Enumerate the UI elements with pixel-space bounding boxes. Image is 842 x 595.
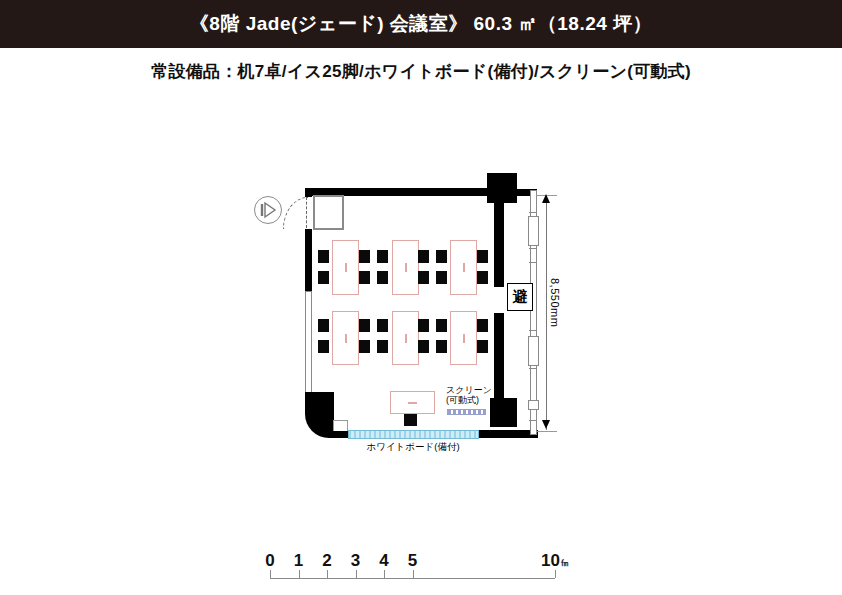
table-center-mark xyxy=(345,263,347,272)
table xyxy=(450,240,477,295)
scale-tick xyxy=(299,570,300,578)
chair xyxy=(359,250,370,263)
scale-unit: ㎙ xyxy=(560,558,569,568)
chair xyxy=(436,271,447,284)
scale-number: 2 xyxy=(322,551,331,571)
chair xyxy=(477,319,488,332)
window-frame xyxy=(528,336,539,366)
entrance-direction-icon xyxy=(254,196,282,224)
chair xyxy=(477,340,488,353)
screen-label-line2: (可動式) xyxy=(446,395,492,405)
scale-number: 1 xyxy=(294,551,303,571)
window-divider xyxy=(529,368,537,369)
scale-number: 10㎙ xyxy=(541,551,569,571)
table-center-mark xyxy=(463,263,465,272)
page-title: 《8階 Jade(ジェード) 会議室》 60.3 ㎡（18.24 坪） xyxy=(190,11,652,37)
table-center-mark xyxy=(405,263,407,272)
wall-left-mid xyxy=(305,229,312,291)
window-divider xyxy=(529,330,537,331)
table-center-mark xyxy=(408,402,417,404)
wall-bottom-right xyxy=(477,430,538,438)
dimension-arrow-down-icon xyxy=(542,420,550,429)
chair xyxy=(318,340,329,353)
window-divider xyxy=(529,262,537,263)
wall-corner-rounded xyxy=(305,392,334,438)
scale-number: 4 xyxy=(379,551,388,571)
table xyxy=(392,311,419,365)
header-bar: 《8階 Jade(ジェード) 会議室》 60.3 ㎡（18.24 坪） xyxy=(0,0,842,48)
chair xyxy=(318,319,329,332)
chair xyxy=(436,319,447,332)
chair xyxy=(318,271,329,284)
entrance-cabinet xyxy=(313,195,344,230)
escape-sign-label: 避 xyxy=(513,288,528,307)
scale-number: 5 xyxy=(408,551,417,571)
door-leaf xyxy=(306,197,307,228)
window-divider xyxy=(529,212,537,213)
dimension-label: 8,550mm xyxy=(549,278,561,327)
whiteboard xyxy=(348,430,479,439)
scale-tick xyxy=(555,570,556,578)
scale-number: 0 xyxy=(265,551,274,571)
whiteboard-label: ホワイトボード(備付) xyxy=(338,441,488,454)
table-center-mark xyxy=(345,334,347,343)
scale-tick xyxy=(356,570,357,578)
floor-plan-page: 《8階 Jade(ジェード) 会議室》 60.3 ㎡（18.24 坪） 常設備品… xyxy=(0,0,842,595)
wall-inner-right-lower xyxy=(494,313,504,398)
chair xyxy=(418,250,429,263)
chair xyxy=(377,340,388,353)
chair xyxy=(404,414,417,426)
column-bottom-right xyxy=(490,398,517,427)
wall-bottom-left-stub xyxy=(333,431,349,438)
scale-tick xyxy=(327,570,328,578)
wall-inner-right-upper xyxy=(494,203,504,287)
wall-left-corner-stub xyxy=(305,188,312,197)
table xyxy=(332,311,359,365)
door-swing-arc xyxy=(283,197,308,229)
table xyxy=(390,391,435,414)
chair xyxy=(377,319,388,332)
table-center-mark xyxy=(405,334,407,343)
chair xyxy=(418,271,429,284)
dimension-line xyxy=(546,196,547,430)
scale-tick xyxy=(384,570,385,578)
chair xyxy=(477,250,488,263)
chair xyxy=(436,250,447,263)
screen-label: スクリーン (可動式) xyxy=(446,385,492,405)
chair xyxy=(359,340,370,353)
chair xyxy=(377,250,388,263)
entrance-arrow-icon xyxy=(258,200,278,220)
chair xyxy=(377,271,388,284)
chair xyxy=(418,319,429,332)
scale-tick xyxy=(413,570,414,578)
dimension-cap-bottom xyxy=(536,431,557,432)
screen-strip xyxy=(447,409,486,415)
escape-sign: 避 xyxy=(507,283,533,311)
window-divider xyxy=(529,420,537,421)
chair xyxy=(318,250,329,263)
equipment-list-text: 常設備品：机7卓/イス25脚/ホワイトボード(備付)/スクリーン(可動式) xyxy=(0,60,842,83)
table xyxy=(332,240,359,295)
screen-label-line1: スクリーン xyxy=(446,385,492,395)
table xyxy=(450,311,477,365)
chair xyxy=(359,319,370,332)
column-top-right xyxy=(487,173,517,203)
chair xyxy=(436,340,447,353)
chair xyxy=(477,271,488,284)
chair xyxy=(418,340,429,353)
dimension-arrow-up-icon xyxy=(542,194,550,203)
window-frame xyxy=(528,400,539,410)
chair xyxy=(359,271,370,284)
table xyxy=(392,240,419,295)
table-center-mark xyxy=(463,334,465,343)
scale-bar-line xyxy=(270,578,555,579)
window-frame xyxy=(528,216,539,246)
window-left xyxy=(305,291,312,394)
scale-tick xyxy=(270,570,271,578)
scale-number: 3 xyxy=(351,551,360,571)
window-divider xyxy=(529,248,537,249)
